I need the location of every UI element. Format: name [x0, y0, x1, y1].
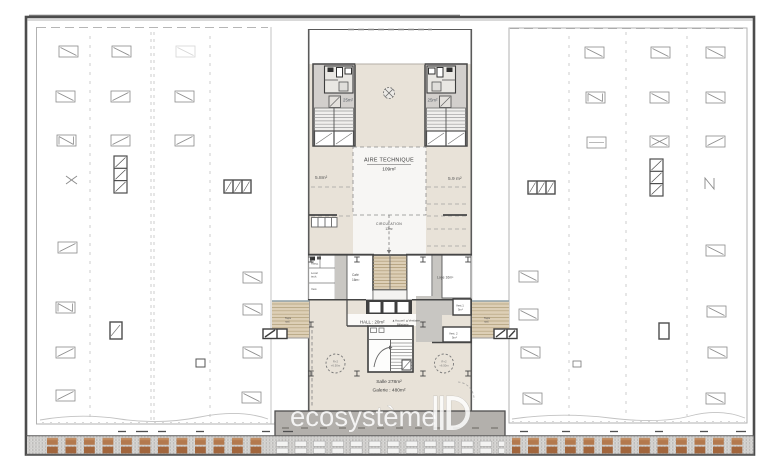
svg-text:5m²: 5m² [452, 336, 457, 340]
svg-text:roul.: roul. [285, 320, 290, 324]
svg-text:13m²: 13m² [385, 227, 392, 231]
svg-text:5.8m²: 5.8m² [315, 175, 328, 181]
svg-text:roul.: roul. [484, 320, 489, 324]
svg-text:CIRCULATION: CIRCULATION [376, 222, 402, 226]
svg-text:Tapis: Tapis [285, 316, 292, 320]
svg-text:16m²: 16m² [352, 278, 359, 282]
svg-text:5.9 m²: 5.9 m² [448, 176, 462, 182]
svg-text:109m²: 109m² [382, 167, 396, 173]
svg-text:25m²: 25m² [428, 98, 439, 103]
svg-text:5m²: 5m² [458, 308, 463, 312]
svg-text:+6.50m: +6.50m [439, 364, 449, 368]
svg-text:ecosystème: ecosystème [290, 401, 437, 432]
svg-text:Salle 278m²: Salle 278m² [376, 379, 402, 385]
svg-text:Café: Café [352, 273, 359, 277]
svg-text:tech.: tech. [311, 275, 317, 279]
svg-text:HALL : 20m²: HALL : 20m² [360, 320, 385, 325]
svg-text:+6.50m: +6.50m [331, 364, 341, 368]
svg-text:25m²: 25m² [343, 98, 354, 103]
svg-text:Galerie : 480m²: Galerie : 480m² [372, 388, 405, 394]
svg-text:Tapis: Tapis [484, 316, 491, 320]
svg-text:Vest.: Vest. [311, 287, 317, 291]
svg-text:AIRE TECHNIQUE: AIRE TECHNIQUE [364, 158, 414, 164]
svg-text:Loge 16m²: Loge 16m² [437, 276, 454, 280]
